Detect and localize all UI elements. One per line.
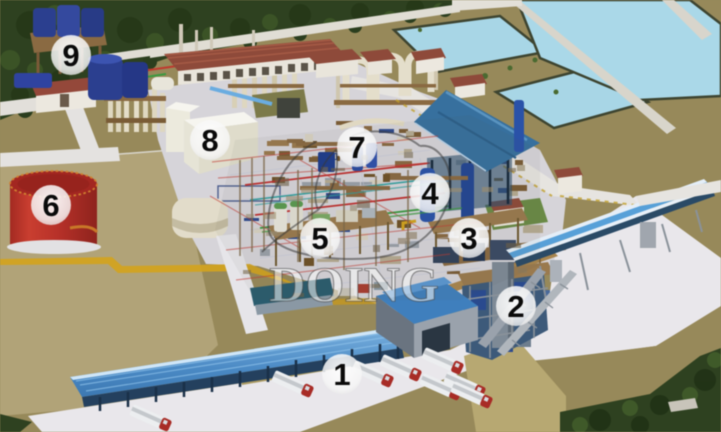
svg-text:3: 3 (460, 221, 477, 256)
svg-text:5: 5 (311, 221, 328, 256)
svg-text:4: 4 (421, 176, 439, 211)
svg-text:DOING: DOING (269, 256, 438, 312)
svg-text:9: 9 (62, 38, 79, 73)
svg-text:1: 1 (333, 357, 350, 392)
svg-text:7: 7 (348, 130, 365, 165)
svg-text:2: 2 (507, 289, 524, 324)
svg-text:6: 6 (42, 188, 59, 223)
svg-text:8: 8 (201, 123, 218, 158)
